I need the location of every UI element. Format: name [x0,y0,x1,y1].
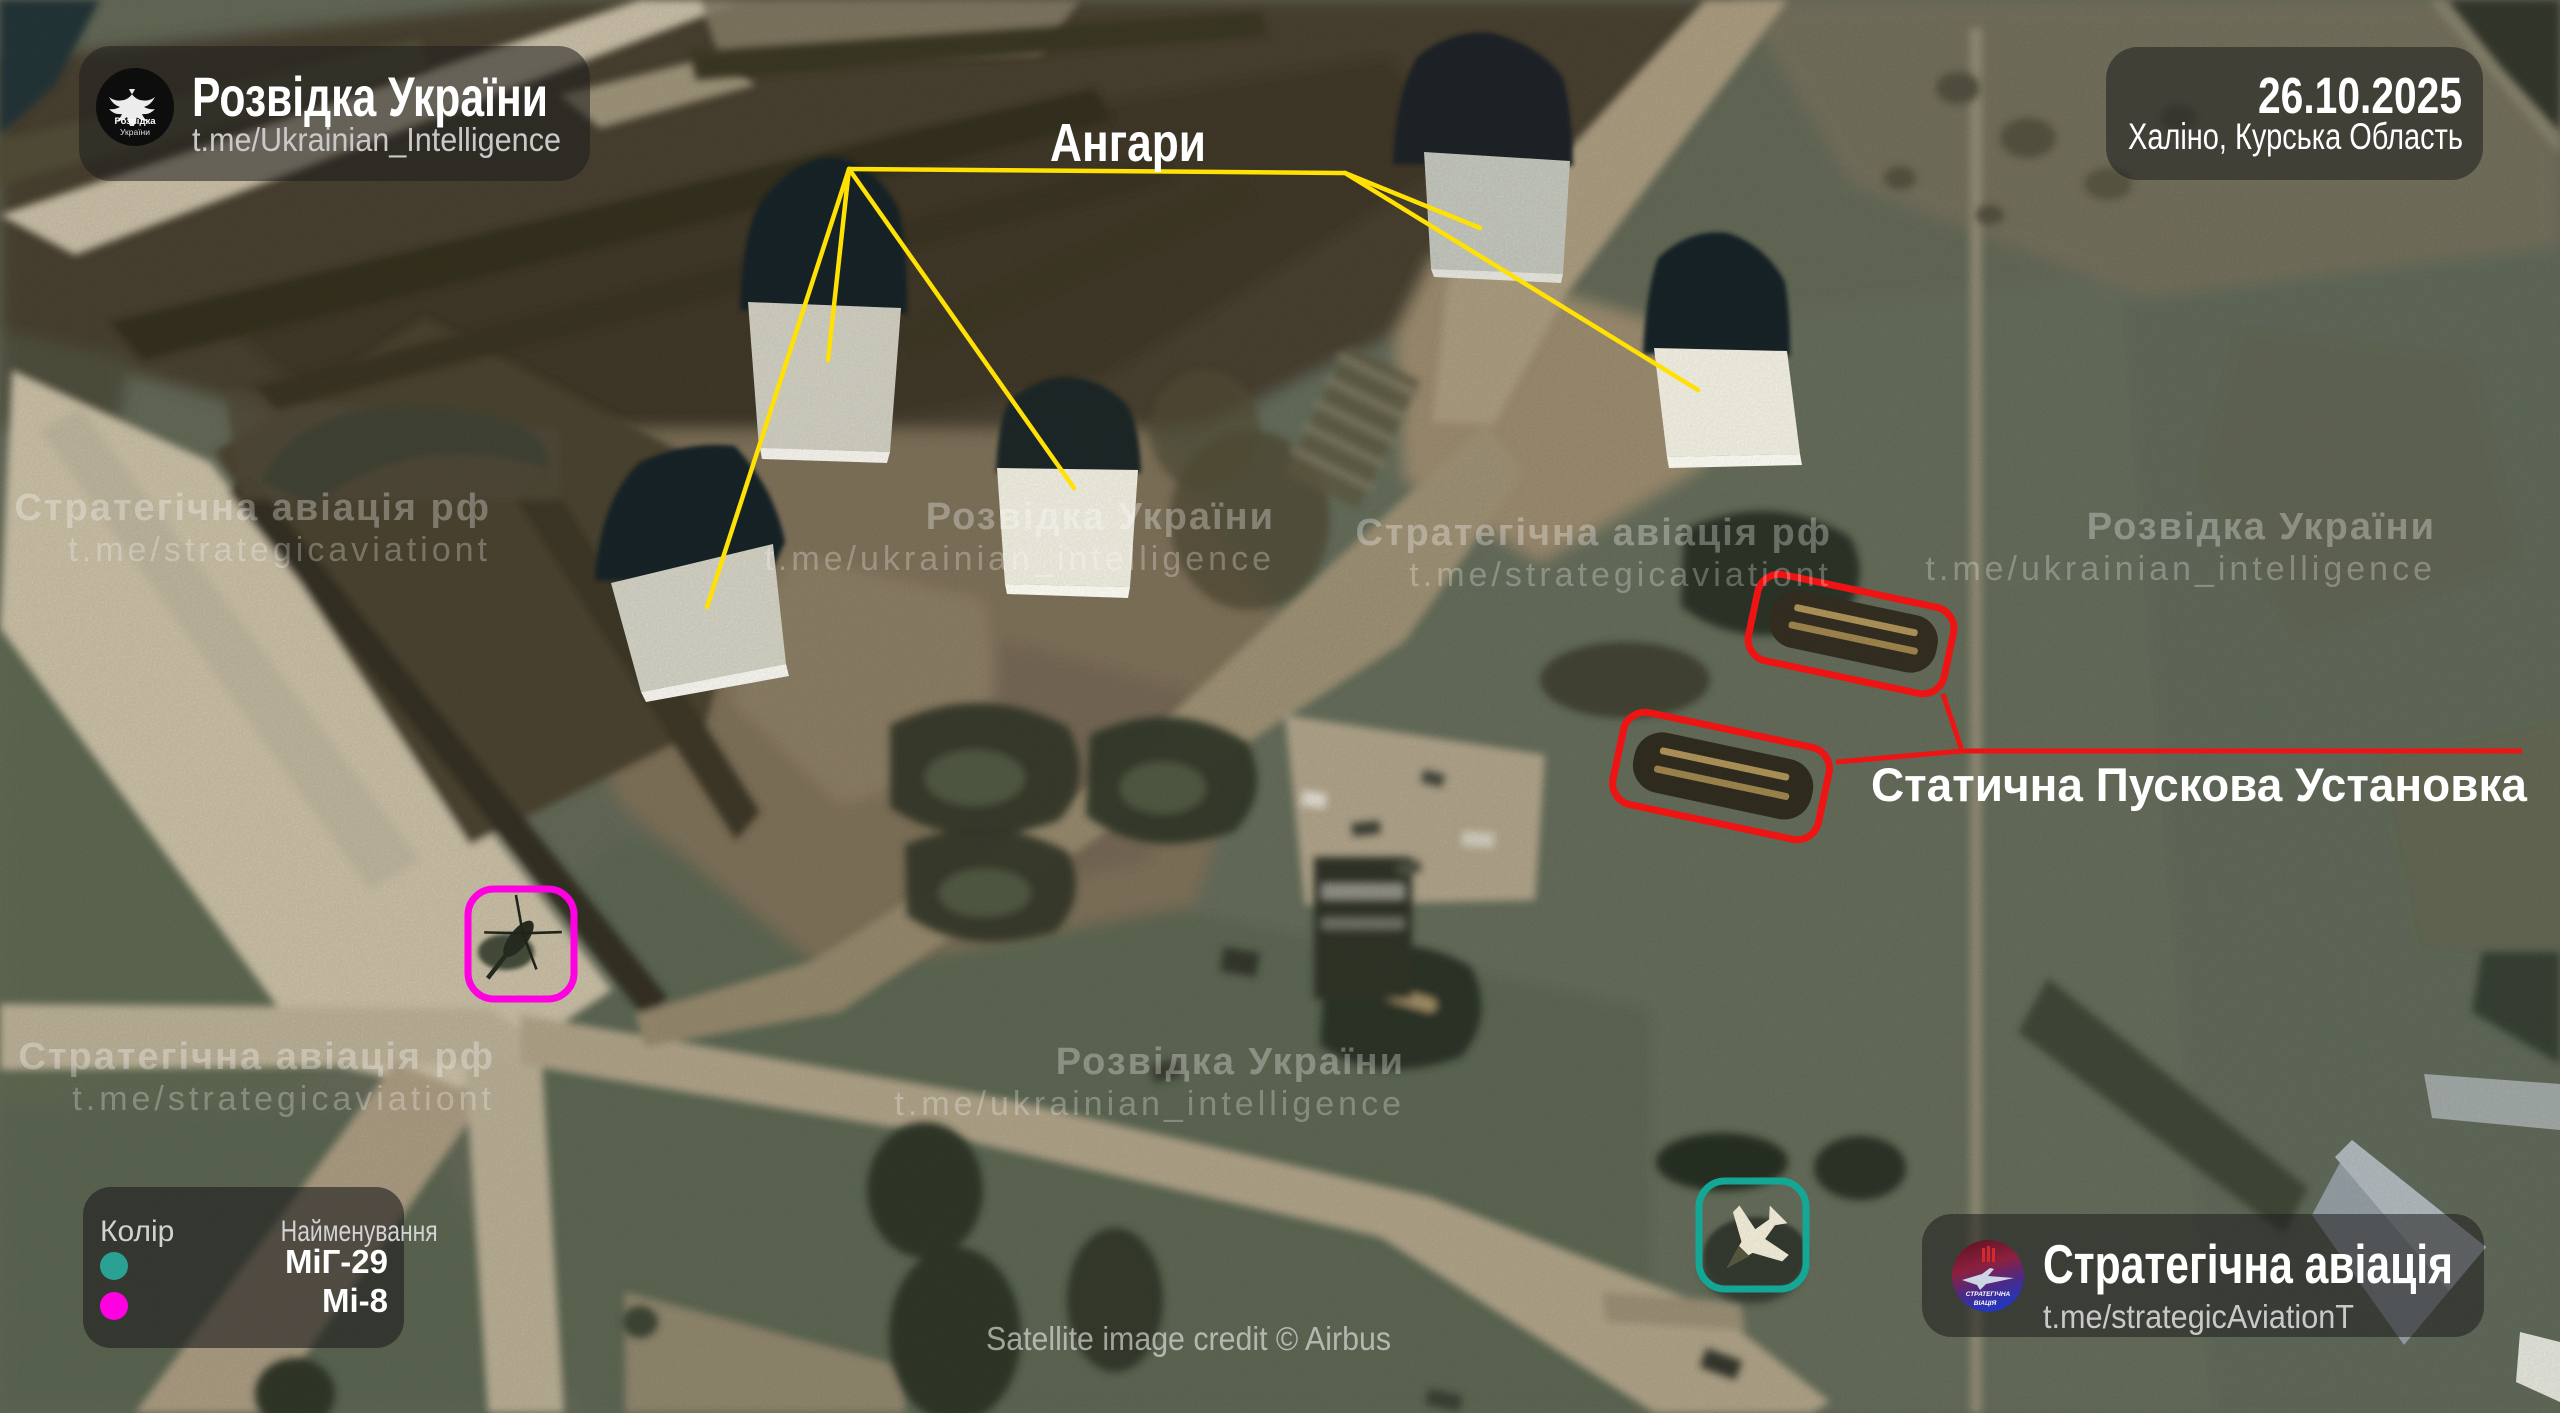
svg-text:СТРАТЕГІЧНА: СТРАТЕГІЧНА [1966,1291,2011,1298]
svg-text:ВІАЦІЯ: ВІАЦІЯ [1974,1300,1997,1307]
svg-text:Розвідка: Розвідка [114,116,156,127]
svg-text:України: України [120,127,150,137]
